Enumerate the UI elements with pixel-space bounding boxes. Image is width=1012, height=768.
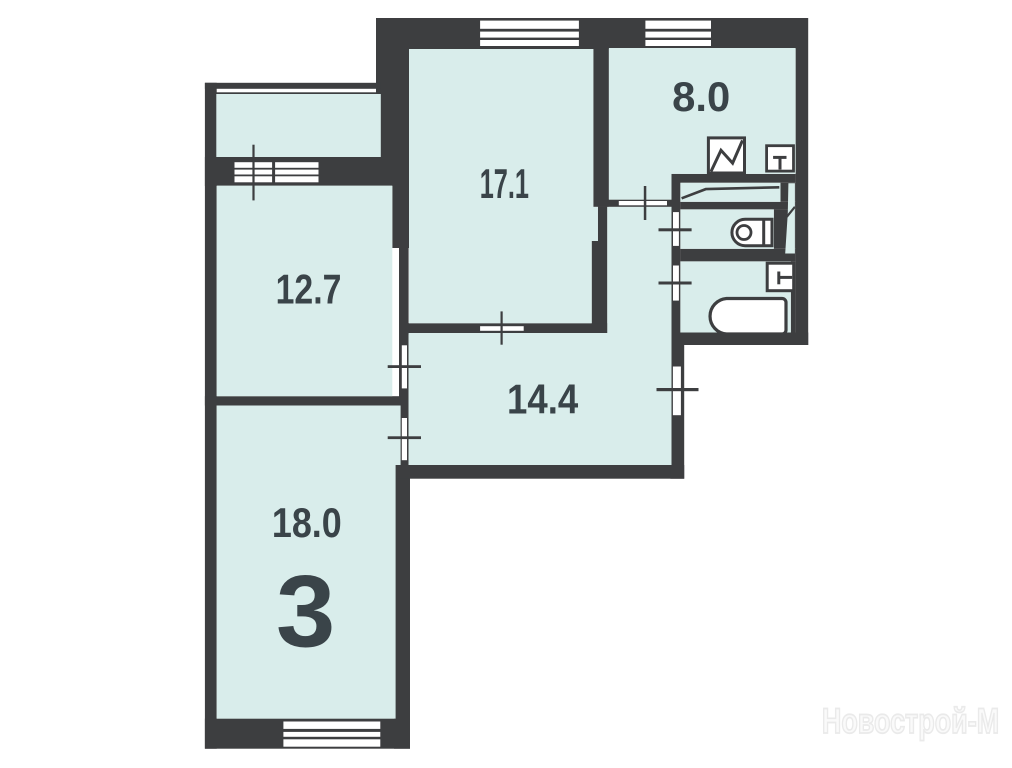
svg-text:3: 3: [276, 556, 335, 669]
svg-text:18.0: 18.0: [272, 500, 342, 546]
svg-text:8.0: 8.0: [672, 73, 730, 120]
svg-text:17.1: 17.1: [480, 161, 529, 207]
svg-text:12.7: 12.7: [276, 267, 342, 313]
svg-text:Новострой-М: Новострой-М: [822, 702, 999, 741]
svg-text:14.4: 14.4: [507, 376, 578, 423]
